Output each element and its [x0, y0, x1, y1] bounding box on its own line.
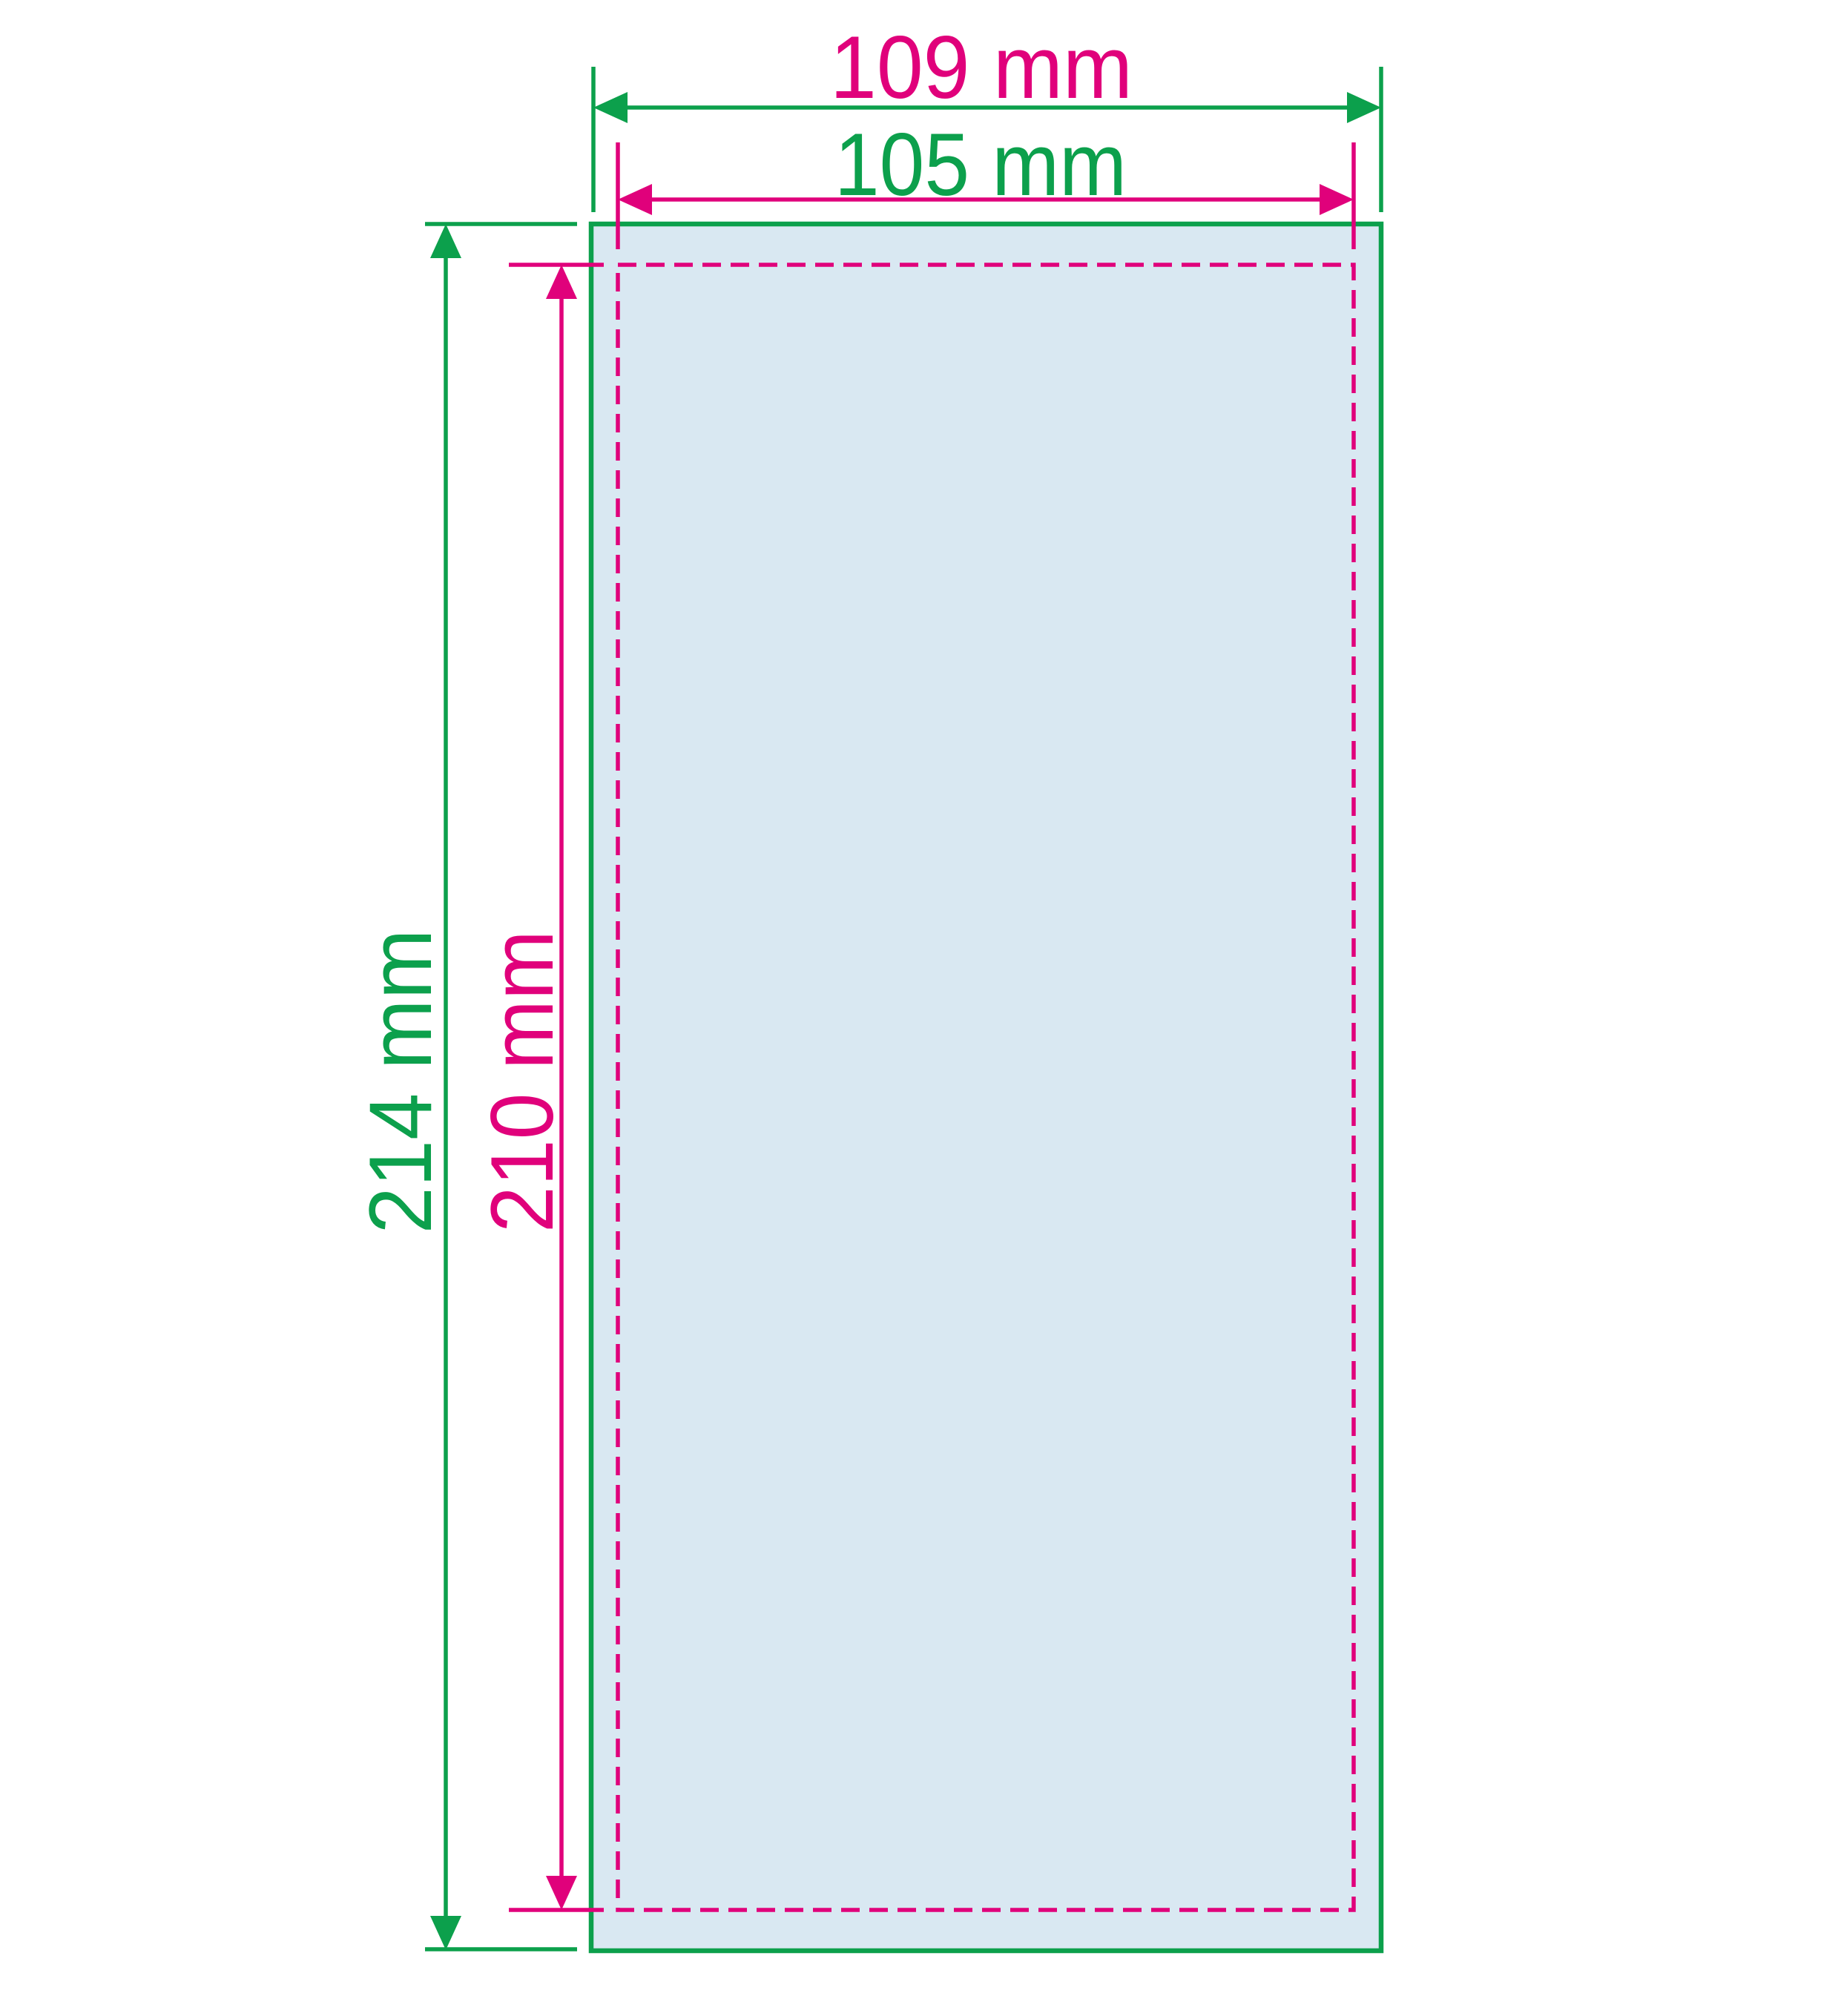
- svg-text:210 mm: 210 mm: [472, 930, 572, 1233]
- svg-text:109 mm: 109 mm: [830, 18, 1133, 117]
- svg-text:105 mm: 105 mm: [834, 115, 1127, 214]
- svg-text:214 mm: 214 mm: [351, 929, 450, 1234]
